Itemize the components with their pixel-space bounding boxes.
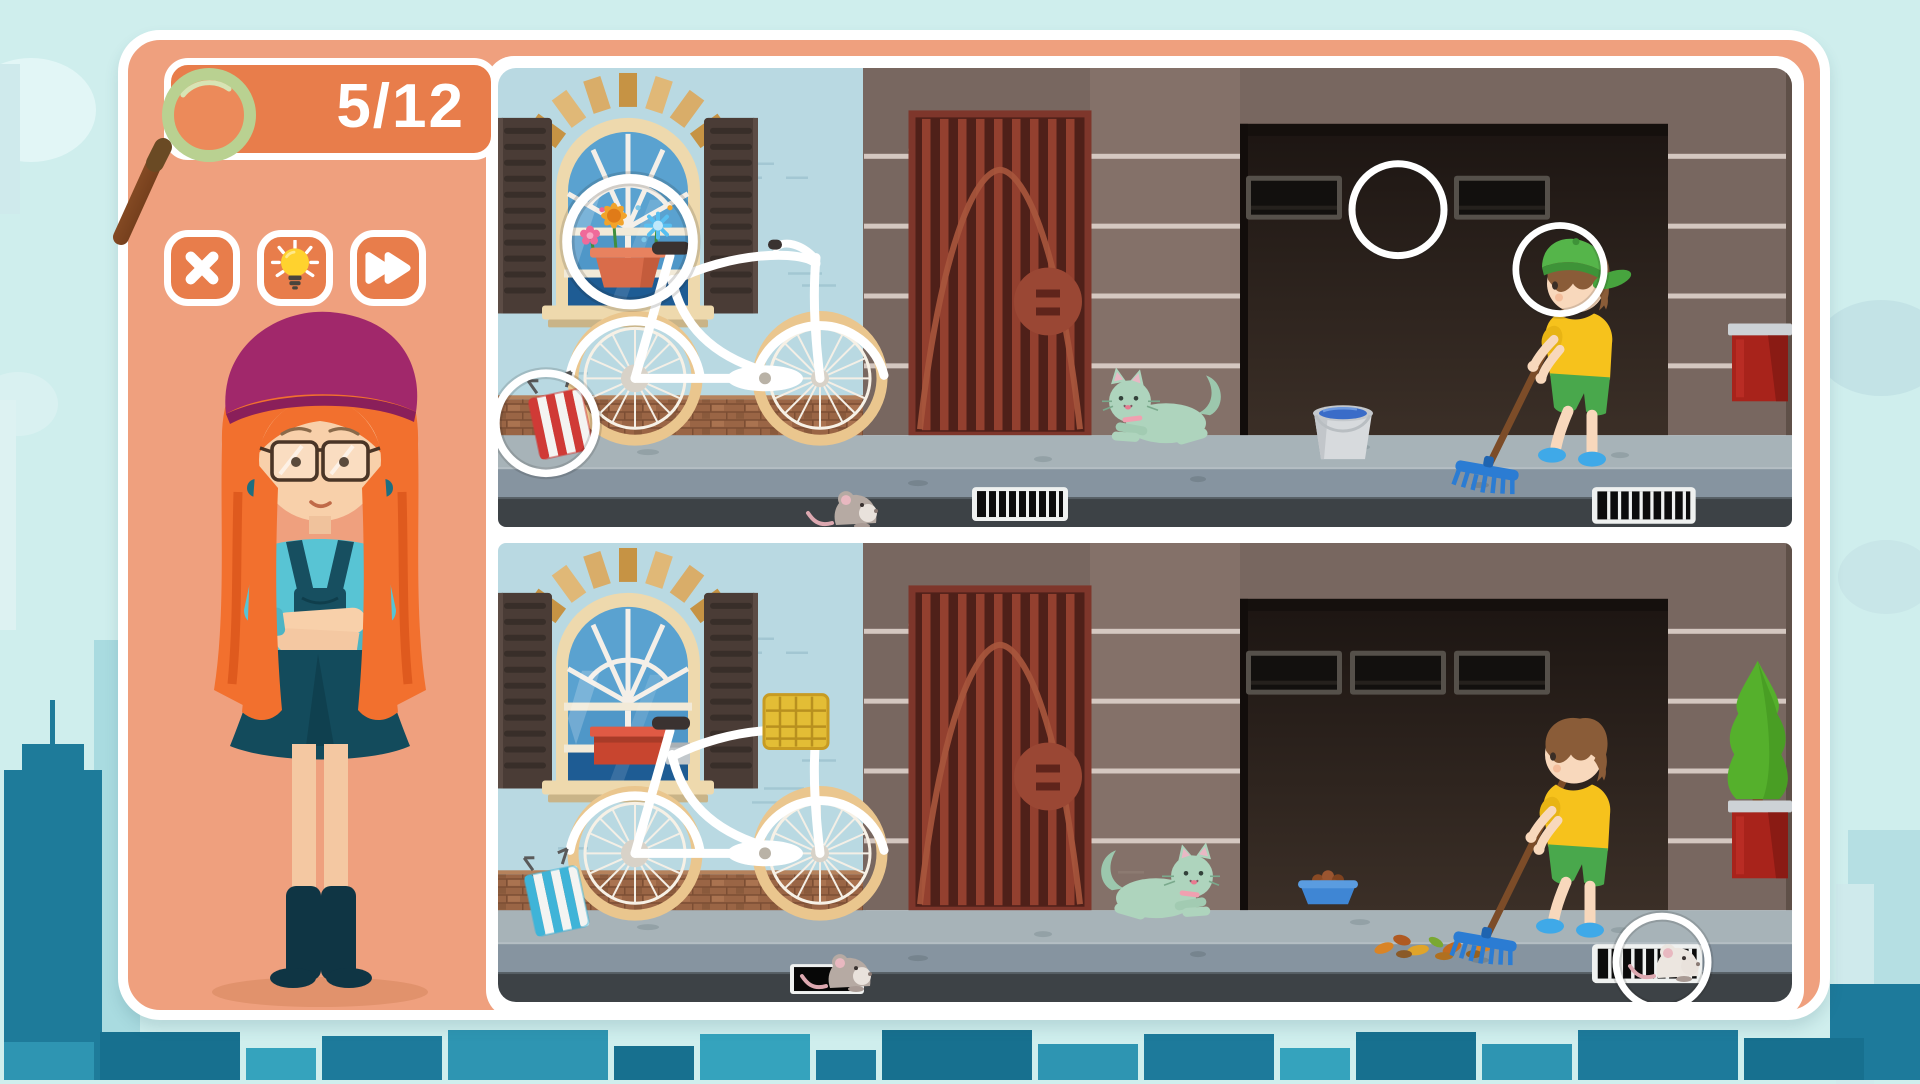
skip-button[interactable] [350, 230, 426, 306]
guide-girl-character [170, 292, 470, 1012]
game-board [486, 56, 1804, 1018]
score-panel: 5/12 [164, 58, 498, 160]
cloud [1838, 540, 1920, 614]
water-bucket[interactable] [1313, 405, 1373, 459]
close-button[interactable] [164, 230, 240, 306]
skyline-bottom-strip [0, 1024, 1920, 1080]
hint-button[interactable] [257, 230, 333, 306]
toolbar [164, 230, 426, 306]
garage-window [1454, 176, 1550, 220]
x-icon [179, 245, 225, 291]
garage-window [1454, 651, 1550, 695]
garage-window [1350, 651, 1446, 695]
game-panel: 5/12 [118, 30, 1830, 1020]
skyline-crown [22, 744, 84, 772]
skyline-building [0, 64, 20, 214]
iron-gate [910, 112, 1090, 437]
lightbulb-icon [270, 240, 320, 296]
red-planter [1728, 800, 1792, 878]
skyline-building [0, 400, 16, 630]
scene-top[interactable] [498, 68, 1792, 527]
iron-gate [910, 587, 1090, 912]
score-text: 5/12 [336, 76, 465, 138]
scene-bottom[interactable] [498, 543, 1792, 1002]
red-planter [1728, 323, 1792, 401]
street-drain [1592, 487, 1696, 524]
bicycle-basket[interactable] [764, 695, 828, 749]
street-drain [972, 487, 1068, 521]
fast-forward-icon [364, 248, 412, 288]
cloud [1816, 300, 1920, 396]
garage-window [1246, 651, 1342, 695]
garage-window [1246, 176, 1342, 220]
